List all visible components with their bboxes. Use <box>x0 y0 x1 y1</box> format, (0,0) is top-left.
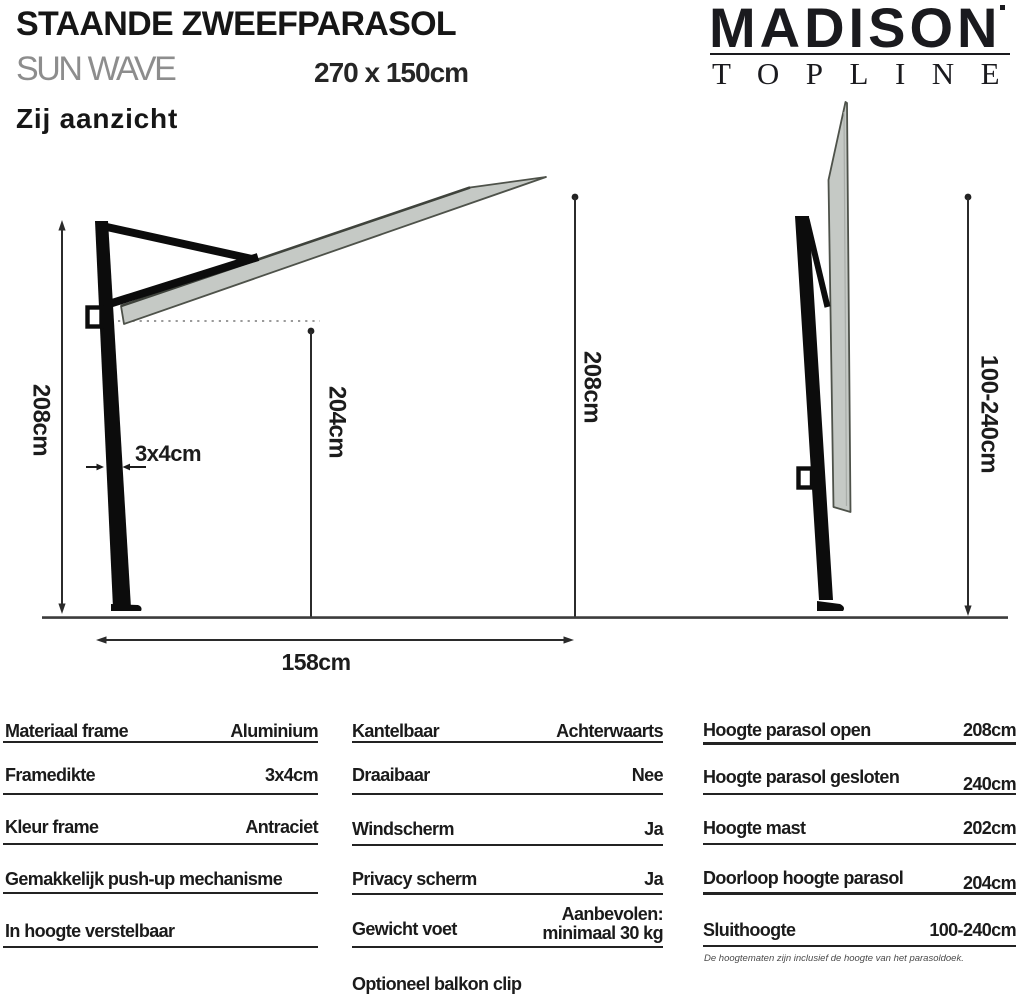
svg-text:204cm: 204cm <box>324 386 351 458</box>
svg-text:208cm: 208cm <box>579 351 606 423</box>
svg-text:100-240cm: 100-240cm <box>976 355 1003 473</box>
svg-text:208cm: 208cm <box>28 384 55 456</box>
svg-text:158cm: 158cm <box>281 649 350 675</box>
svg-text:3x4cm: 3x4cm <box>135 441 201 466</box>
